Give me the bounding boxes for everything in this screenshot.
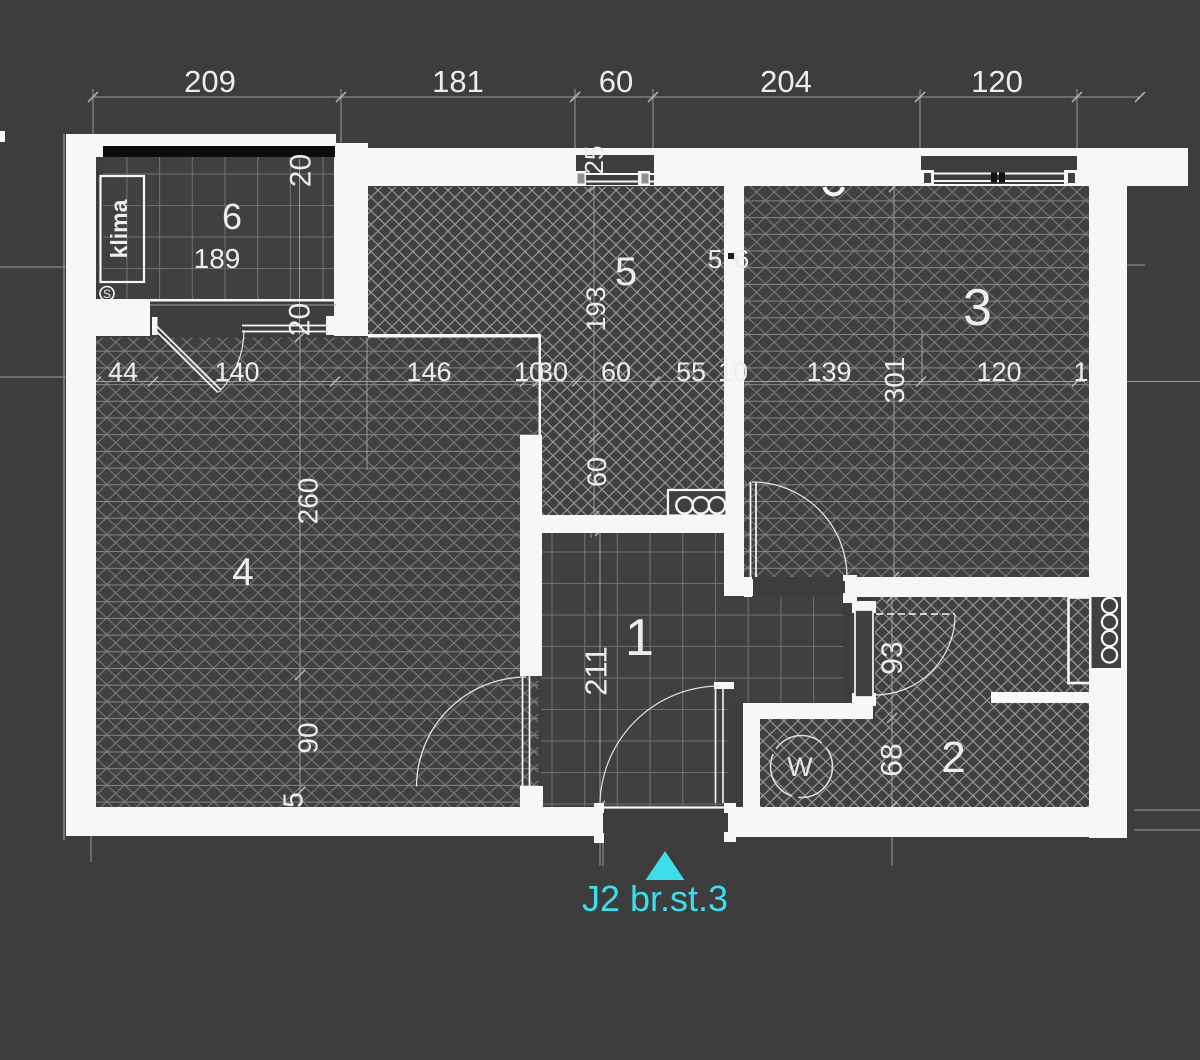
svg-text:90: 90 xyxy=(293,722,324,753)
svg-text:120: 120 xyxy=(971,64,1023,99)
svg-text:211: 211 xyxy=(579,646,614,695)
svg-text:10: 10 xyxy=(718,357,748,387)
svg-text:5: 5 xyxy=(708,244,722,274)
svg-text:20: 20 xyxy=(285,154,318,187)
svg-text:2: 2 xyxy=(941,733,965,782)
svg-text:146: 146 xyxy=(406,357,451,387)
svg-text:209: 209 xyxy=(184,64,236,99)
svg-text:301: 301 xyxy=(879,357,910,404)
svg-text:60: 60 xyxy=(582,457,612,487)
svg-text:60: 60 xyxy=(599,64,633,99)
svg-text:5: 5 xyxy=(278,792,309,808)
svg-text:3: 3 xyxy=(963,279,992,337)
svg-text:55: 55 xyxy=(676,357,706,387)
svg-text:S: S xyxy=(103,287,111,301)
svg-text:260: 260 xyxy=(293,478,324,525)
svg-text:60: 60 xyxy=(601,357,631,387)
svg-text:68: 68 xyxy=(876,743,909,776)
svg-text:139: 139 xyxy=(806,357,851,387)
svg-text:1: 1 xyxy=(625,609,654,667)
svg-text:klima: klima xyxy=(106,199,132,258)
svg-text:20: 20 xyxy=(284,303,317,336)
svg-text:30: 30 xyxy=(538,357,568,387)
svg-text:5: 5 xyxy=(615,250,637,294)
svg-text:93: 93 xyxy=(876,641,909,674)
svg-text:120: 120 xyxy=(976,357,1021,387)
svg-text:6: 6 xyxy=(735,244,749,274)
svg-text:1: 1 xyxy=(1073,357,1088,387)
svg-text:189: 189 xyxy=(194,243,241,274)
svg-text:4: 4 xyxy=(232,551,254,594)
svg-text:140: 140 xyxy=(214,357,259,387)
svg-text:W: W xyxy=(787,752,813,782)
svg-text:44: 44 xyxy=(108,357,138,387)
svg-text:181: 181 xyxy=(432,64,484,99)
svg-text:25: 25 xyxy=(579,146,609,175)
svg-text:193: 193 xyxy=(581,286,611,331)
svg-text:J2 br.st.3: J2 br.st.3 xyxy=(582,878,728,919)
svg-text:204: 204 xyxy=(760,64,812,99)
svg-text:6: 6 xyxy=(222,196,242,237)
